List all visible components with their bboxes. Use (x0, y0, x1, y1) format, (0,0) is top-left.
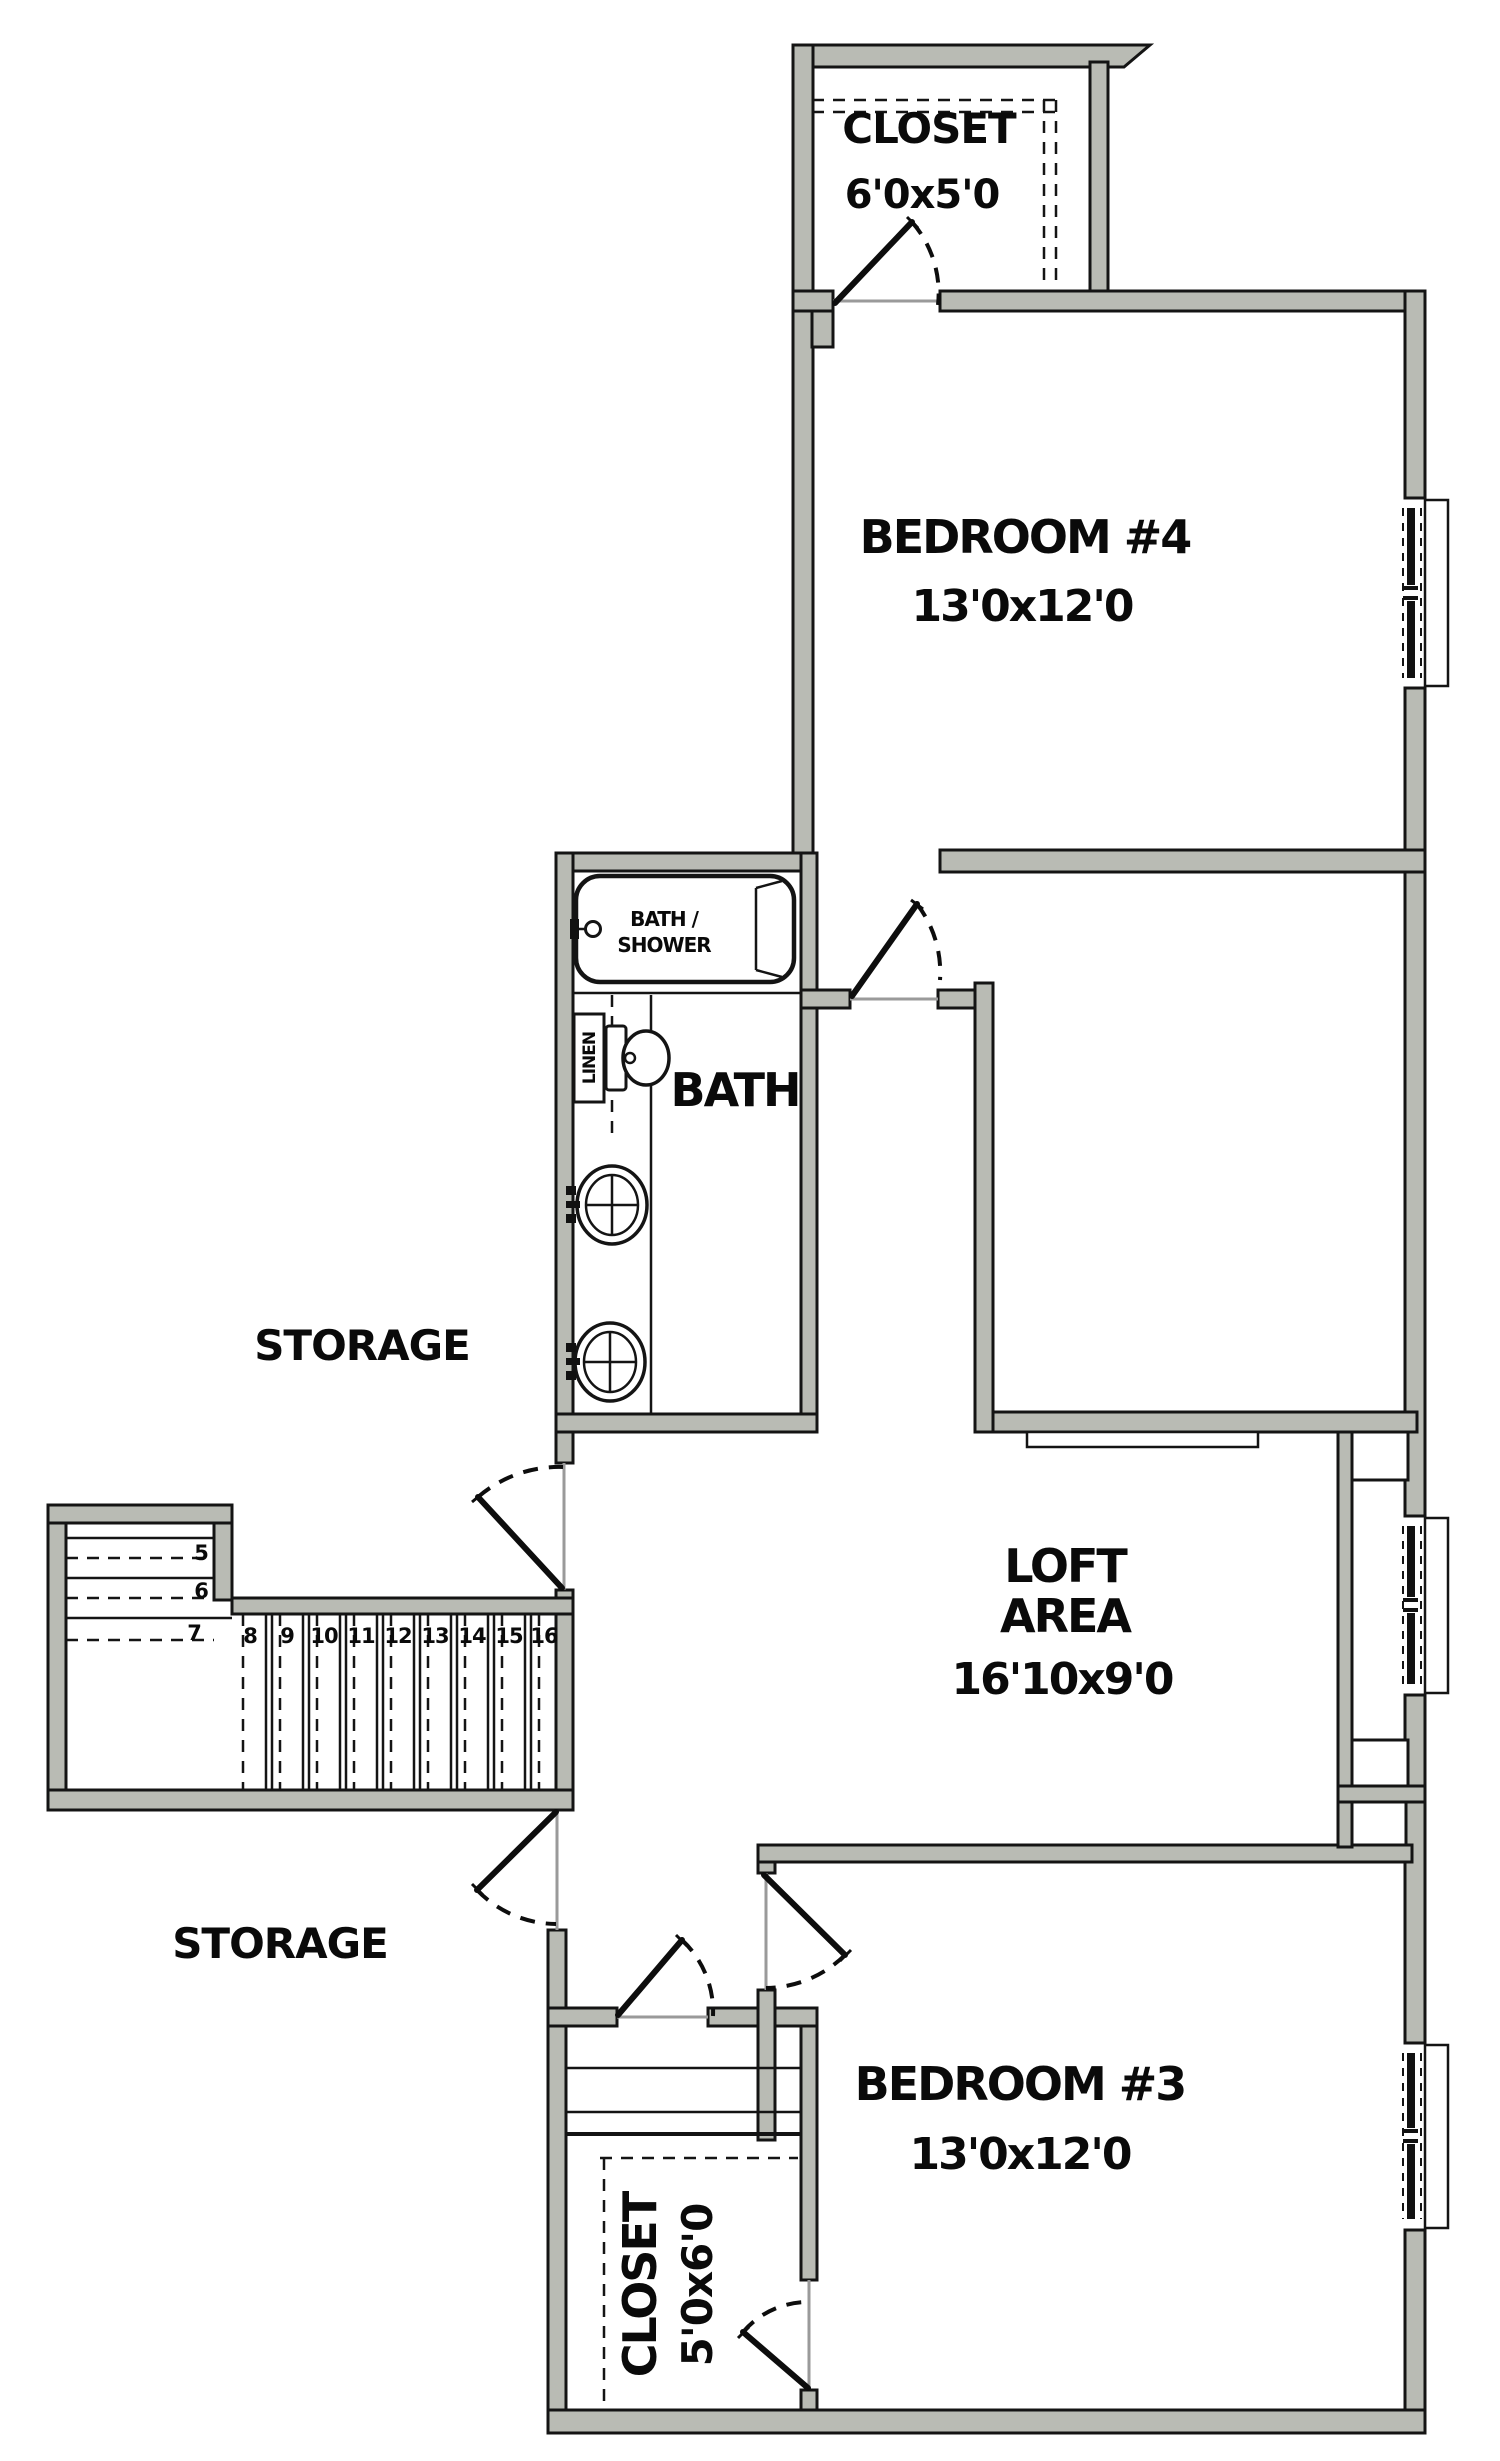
window-frame (1425, 500, 1448, 686)
bedroom3-label: BEDROOM #3 (855, 2057, 1186, 2111)
stair-number: 7 (187, 1621, 201, 1645)
door-swing-arc (917, 904, 940, 980)
wall-segment (793, 291, 833, 311)
wall-segment (556, 1614, 573, 1790)
wall-segment (993, 1412, 1417, 1432)
bedroom3-door (764, 1873, 851, 1990)
window-mullion (1403, 1608, 1418, 1612)
bedroom3-dims: 13'0x12'0 (909, 2129, 1130, 2180)
closet-bottom-dims: 5'0x6'0 (673, 2204, 722, 2367)
door-leaf (477, 1812, 556, 1890)
door-swing-arc (477, 1890, 556, 1924)
wall-segment (232, 1598, 573, 1614)
wall-segment (975, 983, 993, 1432)
toilet-flush (625, 1053, 635, 1063)
bath-label: BATH (671, 1063, 800, 1117)
sink-1 (566, 1166, 647, 1244)
door-leaf (618, 1940, 682, 2015)
tub-drain (586, 922, 601, 937)
closet-top-door (833, 217, 940, 305)
alcove-top-column (1352, 1432, 1408, 1480)
wall-segment (1090, 62, 1108, 311)
stair-number: 14 (458, 1624, 486, 1648)
loft-label-line2: AREA (1000, 1589, 1132, 1643)
room-labels: CLOSET 6'0x5'0 BEDROOM #4 13'0x12'0 BATH… (172, 104, 1190, 2377)
door-swing-arc (743, 2302, 808, 2332)
door-leaf (743, 2332, 808, 2388)
wall-segment (548, 1930, 566, 2430)
storage-upper-label: STORAGE (254, 1321, 470, 1370)
alcove-bottom-column (1352, 1740, 1408, 1786)
stair-number: 8 (243, 1624, 257, 1648)
bath-door (472, 1463, 564, 1590)
stair-number: 9 (280, 1624, 294, 1648)
tub-label-line2: SHOWER (617, 933, 711, 957)
wall-segment (556, 853, 803, 871)
wall-segment (1405, 291, 1425, 498)
door-swing-arc (766, 1955, 845, 1988)
floor-plan-drawing: 5 6 7 8 9 10 11 12 13 14 15 16 (0, 0, 1500, 2461)
window-sash (1407, 1526, 1415, 1597)
tub-faucet (570, 919, 579, 939)
closet-bottom-label: CLOSET (613, 2190, 667, 2377)
loft-ledge (1027, 1432, 1258, 1447)
stair-number: 10 (310, 1624, 338, 1648)
wall-segment (1405, 2230, 1425, 2433)
stair-number: 11 (347, 1624, 375, 1648)
wall-segment (812, 311, 833, 347)
stair-number: 15 (495, 1624, 523, 1648)
sink-faucet (566, 1186, 576, 1195)
tub-label-line1: BATH / (630, 907, 700, 931)
wall-chase (1352, 1802, 1406, 1845)
wall-segment (1405, 688, 1425, 1516)
window-sash (1407, 1613, 1415, 1684)
stair-number: 6 (194, 1579, 208, 1603)
sink-faucet (566, 1358, 580, 1365)
wall-segment (548, 2410, 1425, 2433)
stair-number: 12 (384, 1624, 411, 1648)
stair-number: 13 (421, 1624, 448, 1648)
wall-segment (940, 291, 1425, 311)
hall-closet-door (617, 1935, 713, 2017)
bedroom3-window (1403, 2045, 1448, 2228)
door-swing-arc (478, 1467, 563, 1497)
stairs: 5 6 7 8 9 10 11 12 13 14 15 16 (66, 1538, 558, 1790)
wall-segment (758, 1990, 775, 2140)
stair-number: 5 (194, 1541, 208, 1565)
wall-segment (940, 850, 1425, 872)
door-leaf (835, 222, 912, 303)
bedroom4-label: BEDROOM #4 (860, 510, 1191, 564)
window-sash (1407, 601, 1415, 678)
door-leaf (478, 1497, 562, 1588)
wall-segment (48, 1505, 232, 1523)
wall-segment (801, 2026, 817, 2280)
door-leaf (852, 904, 917, 996)
loft-dims: 16'10x9'0 (951, 1654, 1172, 1705)
window-mullion (1403, 596, 1418, 600)
loft-window (1403, 1518, 1448, 1693)
door-leaf (764, 1875, 845, 1955)
linen-label: LINEN (580, 1032, 600, 1084)
bedroom4-window (1403, 500, 1448, 686)
window-mullion (1403, 1598, 1418, 1602)
window-frame (1425, 1518, 1448, 1693)
closet-top-dims: 6'0x5'0 (845, 172, 1000, 218)
loft-label-line1: LOFT (1004, 1539, 1128, 1593)
wall-segment (801, 853, 817, 1432)
bedroom4-dims: 13'0x12'0 (911, 581, 1132, 632)
floor-plan: 5 6 7 8 9 10 11 12 13 14 15 16 (0, 0, 1500, 2461)
closet-bottom-door (738, 2280, 809, 2390)
sink-2 (566, 1323, 645, 1401)
wall-segment (1338, 1786, 1425, 1802)
window-frame (1425, 2045, 1448, 2228)
window-mullion (1403, 2129, 1418, 2133)
wall-segment (758, 1845, 1412, 1862)
stair-number: 16 (530, 1624, 558, 1648)
sink-faucet (566, 1214, 576, 1223)
bedroom4-door (850, 900, 940, 999)
wall-segment (214, 1523, 232, 1600)
wall-segment (556, 1414, 817, 1432)
window-sash (1407, 2144, 1415, 2219)
storage-lower-label: STORAGE (172, 1919, 388, 1968)
door-swing-arc (912, 222, 939, 305)
wall-segment (801, 990, 850, 1008)
window-sash (1407, 508, 1415, 585)
sink-faucet (566, 1201, 580, 1208)
wall-segment (48, 1505, 66, 1810)
sink-faucet (566, 1371, 576, 1380)
wall-segment (548, 2008, 617, 2026)
closet-top-label: CLOSET (842, 104, 1017, 153)
window-mullion (1403, 2139, 1418, 2143)
window-sash (1407, 2053, 1415, 2128)
sink-faucet (566, 1343, 576, 1352)
stair-numbers: 5 6 7 8 9 10 11 12 13 14 15 16 (187, 1541, 558, 1648)
window-mullion (1403, 586, 1418, 590)
walls (48, 45, 1425, 2433)
door-swing-arc (682, 1940, 713, 2016)
wall-segment (793, 45, 813, 870)
storage-door (472, 1812, 557, 1930)
toilet (606, 1026, 669, 1090)
wall-segment (48, 1790, 573, 1810)
